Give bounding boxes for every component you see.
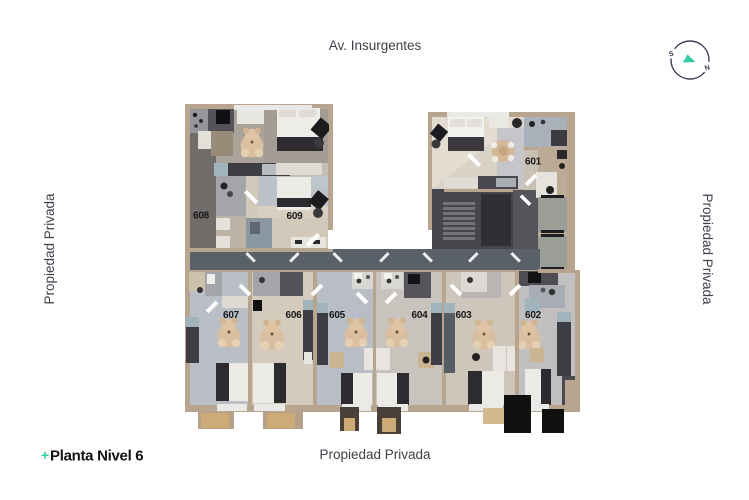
svg-text:604: 604 <box>411 310 428 321</box>
svg-text:Propiedad Privada: Propiedad Privada <box>319 447 431 462</box>
svg-text:Propiedad Privada: Propiedad Privada <box>700 193 715 305</box>
svg-text:608: 608 <box>193 211 210 222</box>
svg-text:609: 609 <box>286 211 303 222</box>
svg-text:Planta Nivel 6: Planta Nivel 6 <box>50 448 143 465</box>
svg-text:601: 601 <box>525 157 542 168</box>
svg-text:605: 605 <box>329 310 346 321</box>
svg-text:603: 603 <box>455 310 472 321</box>
svg-text:606: 606 <box>285 310 302 321</box>
svg-text:Av. Insurgentes: Av. Insurgentes <box>329 38 422 53</box>
svg-text:+: + <box>41 447 49 463</box>
svg-text:Propiedad Privada: Propiedad Privada <box>42 193 57 305</box>
svg-text:607: 607 <box>223 310 240 321</box>
svg-text:602: 602 <box>525 310 542 321</box>
